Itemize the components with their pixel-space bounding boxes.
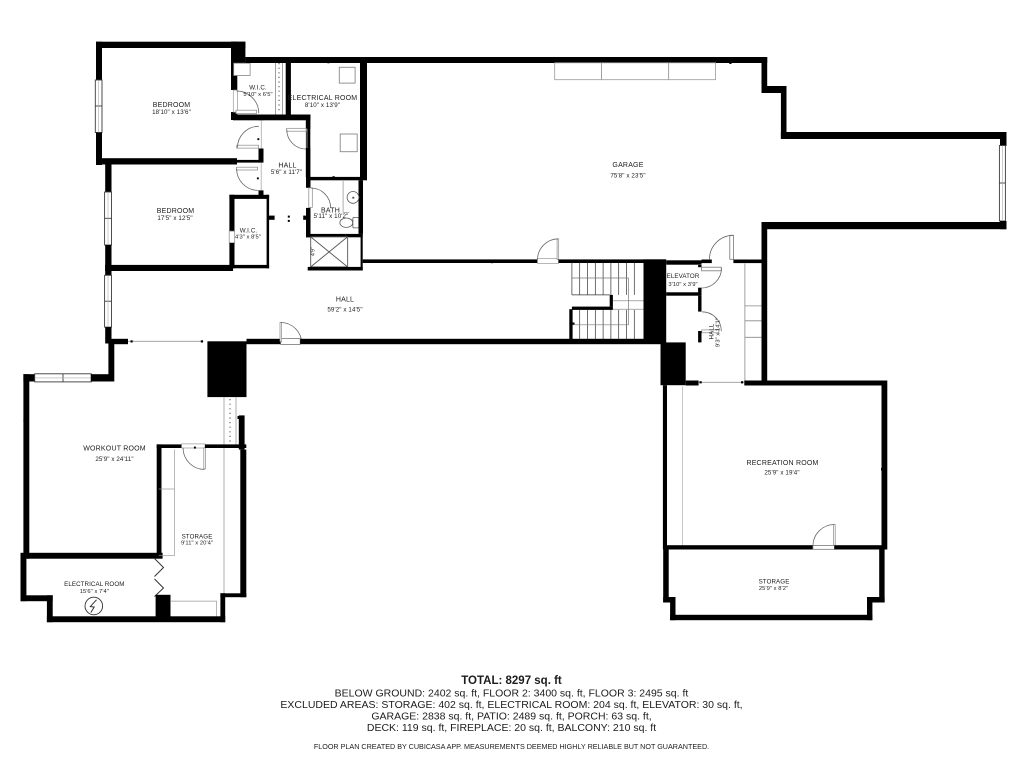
svg-text:STORAGE: STORAGE	[182, 533, 213, 540]
svg-text:GARAGE: GARAGE	[612, 162, 643, 169]
svg-text:EXCLUDED AREAS: STORAGE: 402 s: EXCLUDED AREAS: STORAGE: 402 sq. ft, ELE…	[280, 699, 742, 711]
svg-text:ELECTRICAL ROOM: ELECTRICAL ROOM	[64, 581, 124, 588]
svg-text:ELEVATOR: ELEVATOR	[667, 273, 700, 280]
svg-text:59'2" x 14'5": 59'2" x 14'5"	[327, 307, 362, 314]
svg-text:25'9" x 8'2": 25'9" x 8'2"	[759, 586, 788, 592]
svg-text:HALL: HALL	[708, 323, 715, 339]
svg-text:18'10" x 13'6": 18'10" x 13'6"	[152, 109, 191, 116]
svg-text:4'9": 4'9"	[311, 247, 317, 256]
svg-text:25'9" x 24'11": 25'9" x 24'11"	[95, 456, 133, 463]
svg-text:5'6" x 11'7": 5'6" x 11'7"	[271, 169, 302, 176]
svg-text:15'6" x 7'4": 15'6" x 7'4"	[80, 589, 109, 595]
svg-text:TOTAL: 8297 sq. ft: TOTAL: 8297 sq. ft	[461, 675, 562, 687]
svg-text:W.I.C.: W.I.C.	[249, 84, 267, 91]
svg-text:BEDROOM: BEDROOM	[153, 102, 191, 109]
svg-text:5'10" x 6'5": 5'10" x 6'5"	[243, 92, 272, 98]
svg-text:3'10" x 3'9": 3'10" x 3'9"	[668, 282, 697, 288]
svg-text:25'9" x 19'4": 25'9" x 19'4"	[764, 469, 799, 476]
svg-text:BEDROOM: BEDROOM	[157, 208, 195, 215]
svg-text:8'10" x 13'9": 8'10" x 13'9"	[305, 102, 340, 109]
svg-text:4'3" x 8'5": 4'3" x 8'5"	[235, 234, 261, 240]
svg-text:GARAGE: 2838 sq. ft, PATIO: 24: GARAGE: 2838 sq. ft, PATIO: 2489 sq. ft,…	[371, 711, 651, 723]
svg-text:9'3" x 14'1": 9'3" x 14'1"	[716, 318, 722, 347]
svg-text:75'8" x 23'5": 75'8" x 23'5"	[610, 172, 645, 179]
svg-text:WORKOUT ROOM: WORKOUT ROOM	[83, 445, 146, 452]
svg-text:RECREATION ROOM: RECREATION ROOM	[746, 460, 818, 467]
svg-text:9'11" x 20'4": 9'11" x 20'4"	[181, 540, 213, 546]
svg-text:17'5" x 12'5": 17'5" x 12'5"	[157, 215, 192, 222]
svg-text:5'11" x 10'2": 5'11" x 10'2"	[314, 213, 349, 220]
svg-text:ELECTRICAL ROOM: ELECTRICAL ROOM	[288, 95, 358, 102]
svg-text:STORAGE: STORAGE	[759, 578, 790, 585]
svg-text:HALL: HALL	[336, 296, 354, 303]
svg-text:BELOW GROUND: 2402 sq. ft, FLO: BELOW GROUND: 2402 sq. ft, FLOOR 2: 3400…	[335, 687, 689, 699]
svg-text:FLOOR PLAN CREATED BY CUBICASA: FLOOR PLAN CREATED BY CUBICASA APP. MEAS…	[314, 742, 709, 751]
svg-text:DECK: 119 sq. ft, FIREPLACE: 2: DECK: 119 sq. ft, FIREPLACE: 20 sq. ft, …	[367, 722, 656, 734]
